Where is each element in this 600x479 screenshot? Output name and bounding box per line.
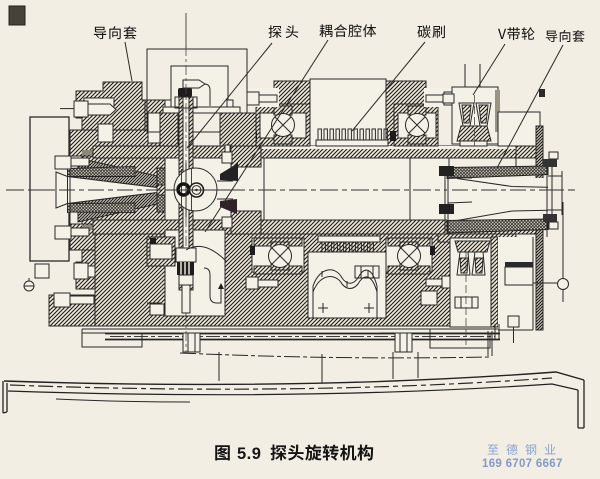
svg-text:5.9: 5.9 xyxy=(237,445,261,463)
svg-text:169 6707 6667: 169 6707 6667 xyxy=(482,458,563,470)
